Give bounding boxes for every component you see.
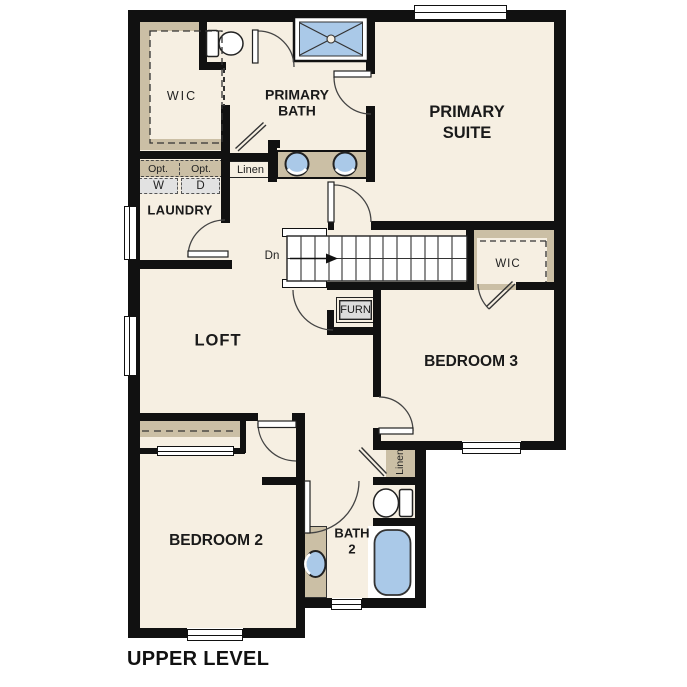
floor-plan: Opt. Opt. W D FURN Linen: [0, 0, 687, 687]
wall: [373, 477, 415, 485]
vanity-counter: [276, 150, 368, 179]
wall: [373, 290, 381, 397]
dryer-label: D: [196, 180, 204, 192]
stair-landing-edge: [282, 228, 327, 237]
wall: [373, 428, 381, 441]
wall: [327, 327, 381, 335]
wall: [366, 10, 375, 74]
window: [124, 316, 137, 376]
washer-label: W: [153, 180, 164, 192]
label-laundry: LAUNDRY: [147, 203, 212, 218]
window: [414, 5, 507, 20]
wall: [199, 10, 207, 70]
window: [331, 599, 362, 610]
wall: [328, 221, 334, 230]
furnace-label: FURN: [340, 304, 371, 316]
wall: [128, 628, 187, 638]
opt-washer-label: Opt.: [137, 163, 179, 175]
label-linen-bath2: Linen: [394, 449, 406, 475]
wall: [415, 441, 426, 608]
linen-hall-box: Linen: [228, 161, 273, 178]
label-primary-bath: PRIMARY BATH: [265, 88, 329, 119]
label-primary-suite: PRIMARY SUITE: [429, 102, 504, 144]
wall: [262, 477, 305, 485]
label-bedroom3: BEDROOM 3: [424, 353, 518, 371]
wall: [466, 230, 474, 290]
wall: [521, 441, 566, 450]
washer-box: W: [139, 178, 178, 194]
bath2-counter: [304, 526, 327, 598]
wall: [128, 413, 258, 421]
wall: [371, 221, 566, 230]
wall: [373, 518, 415, 526]
furnace-box: FURN: [336, 297, 375, 323]
linen-hall-label: Linen: [237, 164, 264, 176]
label-wic-primary: WIC: [167, 89, 197, 103]
label-loft: LOFT: [194, 332, 241, 351]
wall: [362, 598, 426, 608]
window: [187, 629, 243, 641]
wall: [135, 448, 159, 454]
wic-shelf-left: [140, 22, 150, 150]
wall: [128, 260, 232, 269]
wic-shelf-bottom: [140, 139, 222, 150]
page-title: UPPER LEVEL: [127, 648, 269, 671]
wall: [296, 598, 332, 608]
closet-sliding-door: [157, 446, 234, 456]
wall: [327, 310, 334, 327]
wall: [230, 153, 273, 161]
wall: [554, 10, 566, 450]
laundry-opt-counter: Opt. Opt.: [136, 160, 223, 177]
label-bedroom2: BEDROOM 2: [169, 532, 263, 550]
wall: [268, 140, 277, 182]
window: [124, 206, 137, 260]
wall: [327, 282, 474, 290]
label-stairs-down: Dn: [265, 250, 280, 262]
wall: [128, 151, 230, 159]
opt-dryer-label: Opt.: [179, 163, 222, 175]
bedroom2-closet-shelf: [136, 421, 240, 437]
wall: [199, 62, 226, 70]
label-bath2: BATH 2: [334, 526, 369, 557]
wall: [243, 628, 305, 638]
dryer-box: D: [181, 178, 220, 194]
label-wic-bedroom3: WIC: [495, 258, 520, 270]
wall: [516, 282, 566, 290]
wall: [366, 106, 375, 182]
stair-landing-edge: [282, 279, 327, 288]
wall: [221, 105, 230, 223]
window: [462, 442, 521, 454]
wall: [292, 413, 305, 421]
